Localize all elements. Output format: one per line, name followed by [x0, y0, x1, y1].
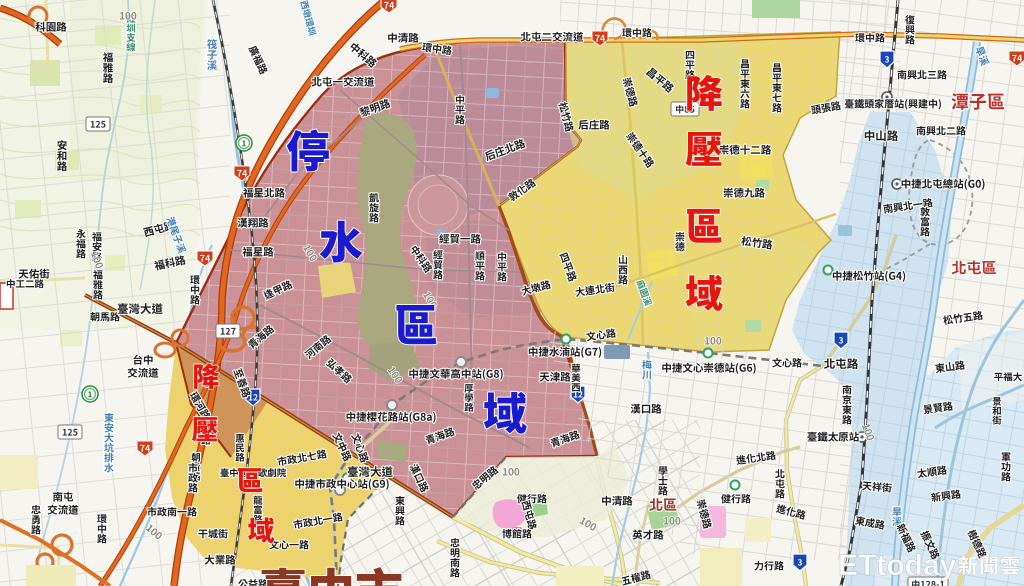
svg-text:ETtoday: ETtoday [838, 549, 957, 582]
